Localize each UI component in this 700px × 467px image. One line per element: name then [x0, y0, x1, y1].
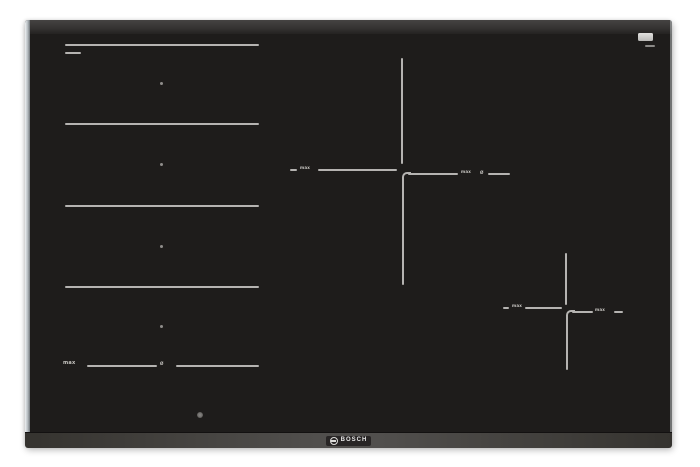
flexzone-dot	[160, 245, 163, 248]
flexzone-diameter-label: Ø	[160, 361, 164, 366]
cooktop-surface: max Ø max max Ø max max BOSCH	[25, 20, 672, 447]
flexzone-line-4	[65, 286, 259, 288]
center-zone-left-arm	[318, 169, 397, 171]
flexzone-dot	[160, 325, 163, 328]
power-sensor-dot	[197, 412, 203, 418]
center-zone-vline-lower	[402, 181, 404, 285]
flexzone-line-2	[65, 123, 259, 125]
center-zone-diameter-label: Ø	[480, 170, 484, 175]
bosch-logo-text: BOSCH	[341, 437, 368, 444]
flexzone-dot	[160, 82, 163, 85]
right-zone-max-label-left: max	[512, 303, 522, 308]
front-trim: BOSCH	[25, 432, 672, 448]
center-zone-right-arm-a	[408, 173, 458, 175]
flexzone-line-5b	[176, 365, 259, 367]
corner-sticker	[638, 33, 653, 41]
center-zone-vline-upper	[401, 58, 403, 164]
bosch-armature-icon	[330, 437, 338, 445]
flexzone-max-label: max	[63, 360, 75, 366]
top-edge-band	[25, 20, 672, 34]
center-zone-max-label-right: max	[461, 169, 471, 174]
right-bevel-trim	[670, 20, 672, 447]
flexzone-line-3	[65, 205, 259, 207]
right-zone-vline-upper	[565, 253, 567, 305]
right-zone-right-arm-a	[572, 311, 593, 313]
flexzone-line-1	[65, 44, 259, 46]
right-zone-max-label-right: max	[595, 307, 605, 312]
right-zone-left-arm	[525, 307, 562, 309]
flexzone-tick	[65, 52, 81, 54]
corner-sticker-dash	[645, 45, 655, 47]
center-zone-max-label-left: max	[300, 165, 310, 170]
left-bevel-trim	[25, 20, 30, 447]
right-zone-right-dash	[614, 311, 623, 313]
center-zone-right-arm-b	[488, 173, 510, 175]
center-zone-left-dash	[290, 169, 297, 171]
right-zone-vline-lower	[566, 319, 568, 370]
flexzone-line-5a	[87, 365, 157, 367]
flexzone-dot	[160, 163, 163, 166]
bosch-logo: BOSCH	[326, 436, 372, 446]
right-zone-left-dash	[503, 307, 509, 309]
